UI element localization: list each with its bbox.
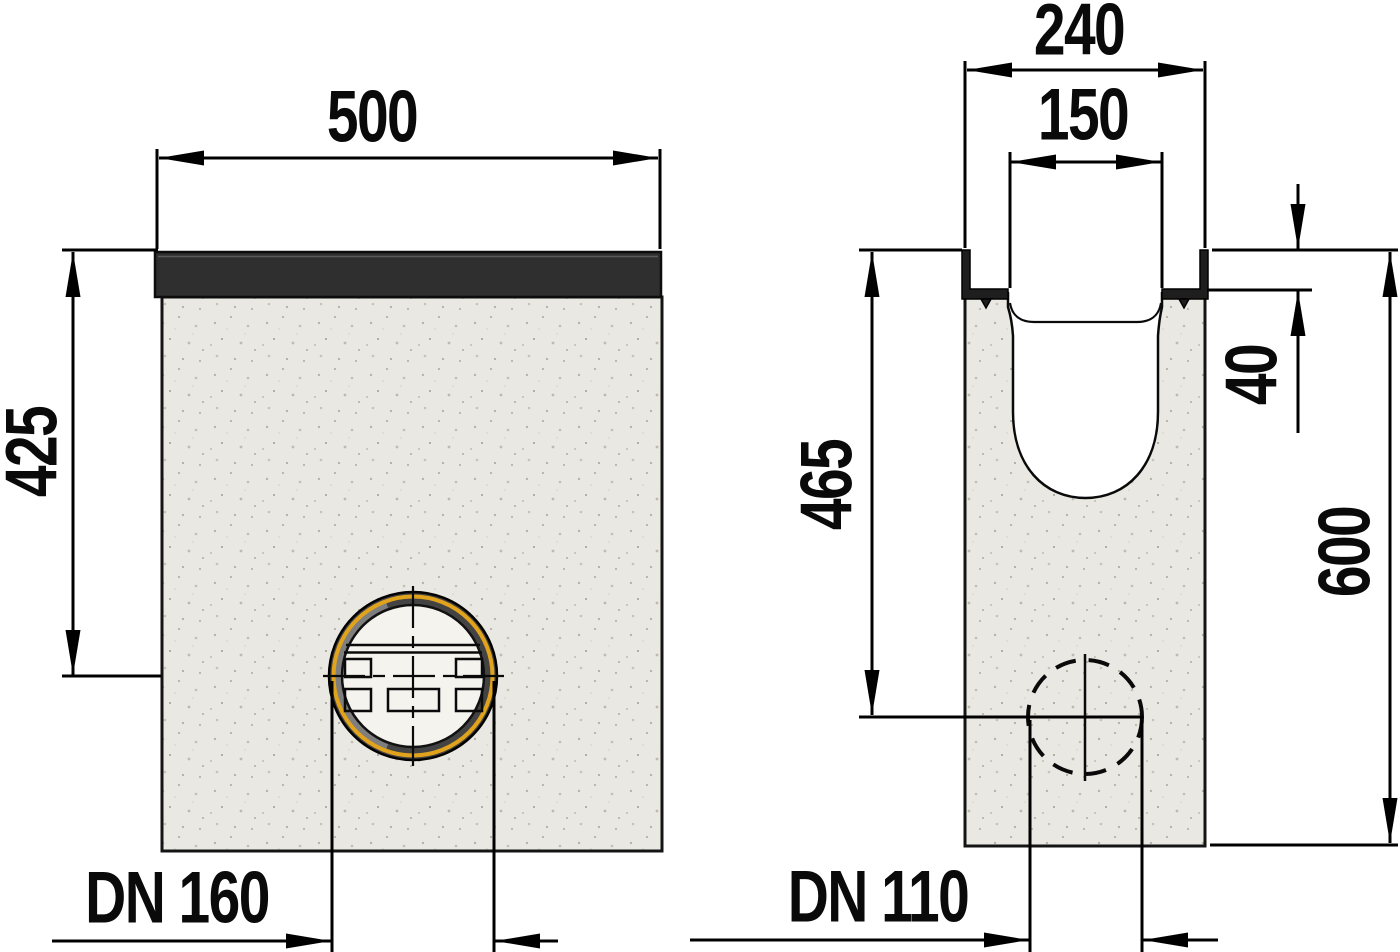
dim-425-label: 425	[0, 407, 69, 497]
dim-150-label: 150	[1038, 79, 1128, 152]
dim-dn160-label: DN 160	[85, 862, 269, 935]
technical-drawing-page: 500 425 DN 160 240 150 40 465 600 DN 110	[0, 0, 1400, 952]
front-view-concrete-body	[162, 297, 662, 851]
dim-dn110-label: DN 110	[788, 861, 969, 934]
drawing-canvas	[0, 0, 1400, 952]
dim-465-label: 465	[791, 440, 864, 530]
edge-rail-right	[1162, 250, 1208, 299]
front-view-grate	[155, 252, 661, 297]
dim-500-label: 500	[327, 81, 417, 154]
dim-240-label: 240	[1034, 0, 1124, 67]
edge-rail-left	[962, 250, 1008, 299]
dim-40-label: 40	[1216, 345, 1289, 405]
front-view	[155, 252, 662, 851]
side-view	[962, 250, 1208, 846]
dim-600-label: 600	[1309, 507, 1382, 597]
